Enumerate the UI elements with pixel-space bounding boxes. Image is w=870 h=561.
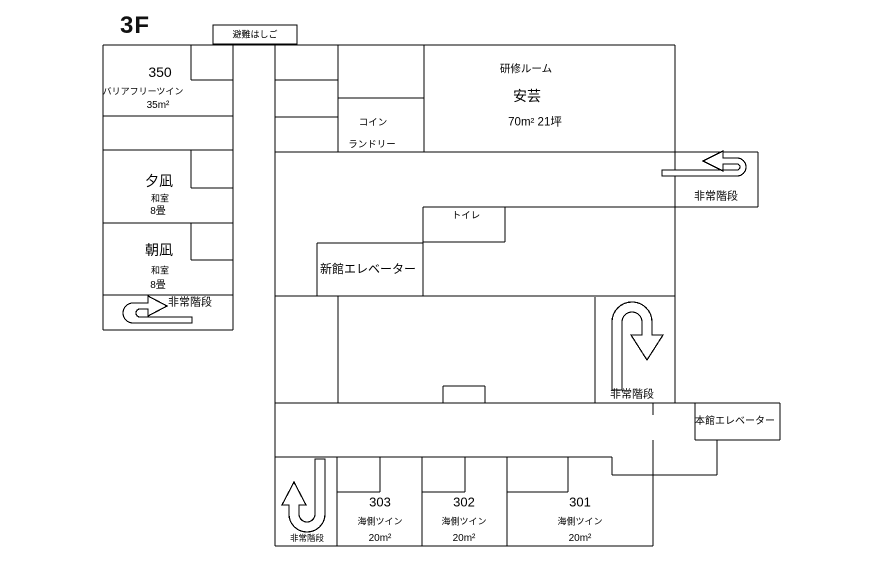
room-302-type: 海側ツイン bbox=[441, 518, 486, 527]
new-wing-elevator-label: 新館エレベーター bbox=[320, 263, 416, 275]
wall-lines bbox=[103, 25, 780, 546]
room-yunagi-type: 和室 bbox=[151, 195, 169, 204]
coin-laundry-label-line1: コイン bbox=[359, 118, 388, 128]
room-301-number: 301 bbox=[569, 496, 591, 509]
training-room-name: 安芸 bbox=[513, 89, 541, 103]
room-303-number: 303 bbox=[369, 496, 391, 509]
coin-laundry-label-line2: ランドリー bbox=[348, 140, 396, 150]
room-302-number: 302 bbox=[453, 496, 475, 509]
room-350-number: 350 bbox=[148, 65, 171, 79]
training-room-label: 研修ルーム bbox=[500, 64, 552, 75]
room-301-type: 海側ツイン bbox=[557, 518, 602, 527]
room-yunagi-size: 8畳 bbox=[150, 207, 166, 217]
floor-title: 3F bbox=[120, 12, 150, 40]
floorplan-walls bbox=[0, 0, 870, 561]
room-yunagi-name: 夕凪 bbox=[145, 174, 173, 188]
emergency-stairs-midright-label: 非常階段 bbox=[610, 390, 654, 401]
u-turn-down-arrow-icon bbox=[612, 302, 663, 390]
u-turn-up-arrow-icon bbox=[282, 459, 325, 532]
room-350-size: 35m² bbox=[147, 101, 170, 111]
room-asanagi-type: 和室 bbox=[151, 267, 169, 276]
room-asanagi-size: 8畳 bbox=[150, 281, 166, 291]
room-303-type: 海側ツイン bbox=[357, 518, 402, 527]
emergency-stairs-left-label: 非常階段 bbox=[168, 298, 212, 309]
room-301-size: 20m² bbox=[569, 534, 592, 544]
room-302-size: 20m² bbox=[453, 534, 476, 544]
room-asanagi-name: 朝凪 bbox=[145, 243, 173, 257]
emergency-stairs-topright-label: 非常階段 bbox=[694, 192, 738, 203]
room-303-size: 20m² bbox=[369, 534, 392, 544]
main-wing-elevator-label: 本館エレベーター bbox=[695, 417, 775, 427]
training-room-size: 70m² 21坪 bbox=[508, 117, 562, 129]
toilet-label: トイレ bbox=[452, 211, 481, 221]
floor-plan: 3F 避難はしご 350 バリアフリーツイン 35m² 夕凪 和室 8畳 朝凪 … bbox=[0, 0, 870, 561]
emergency-stairs-bottomleft-label: 非常階段 bbox=[290, 534, 324, 543]
room-350-type: バリアフリーツイン bbox=[103, 88, 184, 97]
escape-hatch-label: 避難はしご bbox=[232, 31, 277, 40]
